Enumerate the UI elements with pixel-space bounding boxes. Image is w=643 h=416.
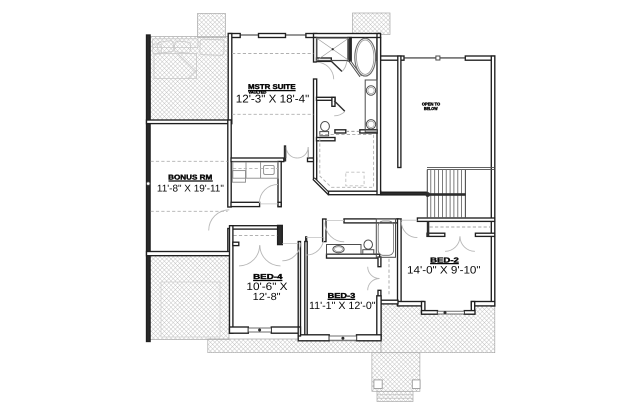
svg-text:12'-3" X 18'-4": 12'-3" X 18'-4"	[236, 93, 310, 105]
svg-text:BED-3: BED-3	[328, 291, 356, 300]
svg-text:11'-8" X 19'-11": 11'-8" X 19'-11"	[157, 183, 225, 194]
svg-text:12'-8": 12'-8"	[253, 292, 281, 303]
svg-text:11'-1" X 12'-0": 11'-1" X 12'-0"	[309, 300, 376, 312]
svg-text:BELOW: BELOW	[424, 106, 438, 111]
svg-text:BED-4: BED-4	[253, 272, 282, 281]
svg-text:14'-0" X 9'-10": 14'-0" X 9'-10"	[407, 264, 481, 276]
